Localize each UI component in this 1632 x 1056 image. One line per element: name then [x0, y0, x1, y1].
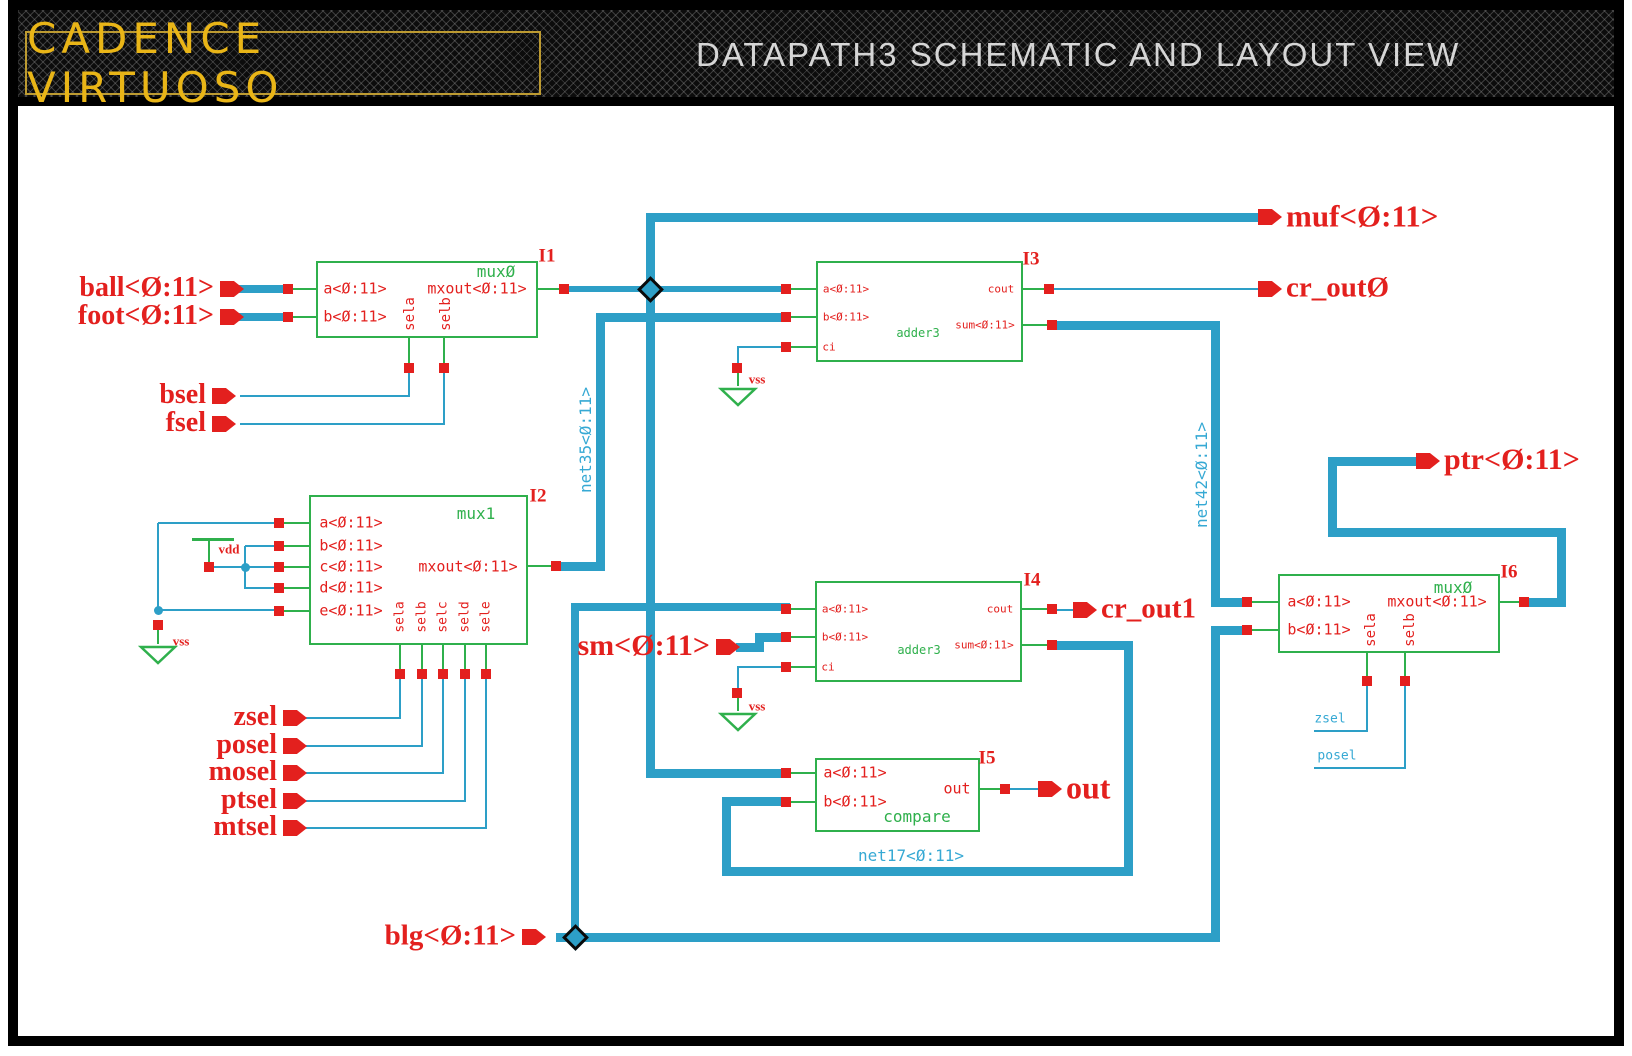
io-pin-arrow-foot11 — [220, 309, 244, 325]
wire-segment — [790, 608, 815, 610]
pin-label: sum<Ø:11> — [955, 320, 1015, 331]
junction-diamond — [637, 276, 664, 303]
pin-square — [1362, 676, 1372, 686]
io-pin-arrow-mosel — [283, 765, 307, 781]
io-pin-label-blg11: blg<Ø:11> — [385, 921, 516, 950]
pin-square — [1000, 784, 1010, 794]
pin-square — [781, 284, 791, 294]
io-pin-arrow-ptr11 — [1416, 453, 1440, 469]
wire-segment — [722, 867, 1133, 876]
pin-square — [274, 518, 284, 528]
pin-square — [781, 797, 791, 807]
pin-label: a<Ø:11> — [822, 604, 868, 615]
pin-label: selb — [439, 297, 453, 331]
pin-label: selb — [416, 601, 429, 632]
instance-label: I3 — [1023, 250, 1040, 269]
io-pin-label-ptsel: ptsel — [221, 786, 277, 814]
block-type-label: adder3 — [896, 327, 939, 339]
pin-label: sela — [403, 297, 417, 331]
pin-label: b<Ø:11> — [823, 312, 869, 323]
pin-square — [274, 541, 284, 551]
wire-segment — [464, 645, 466, 670]
pin-label: mxout<Ø:11> — [427, 282, 526, 297]
pin-square — [460, 669, 470, 679]
pin-square — [283, 312, 293, 322]
junction-dot — [241, 563, 250, 572]
wire-segment — [283, 545, 309, 547]
power-label: vdd — [219, 543, 240, 556]
wire-segment — [399, 678, 401, 719]
wire-segment — [1009, 788, 1040, 790]
pin-label: cout — [987, 604, 1014, 615]
pin-square — [781, 632, 791, 642]
io-pin-label-foot11: foot<Ø:11> — [78, 302, 214, 330]
pin-label: a<Ø:11> — [323, 282, 386, 297]
io-pin-arrow-cr_out1 — [1073, 602, 1097, 618]
pin-label: c<Ø:11> — [319, 560, 382, 575]
pin-label: a<Ø:11> — [823, 766, 886, 781]
pin-label: cout — [988, 284, 1015, 295]
wire-segment — [1053, 288, 1258, 290]
pin-square — [204, 562, 214, 572]
pin-square — [1400, 676, 1410, 686]
instance-label: I6 — [1501, 563, 1518, 582]
pin-square — [551, 561, 561, 571]
io-pin-label-muf11: muf<Ø:11> — [1286, 200, 1438, 231]
io-pin-label-bsel: bsel — [159, 381, 206, 409]
io-pin-arrow-cr_out — [1258, 281, 1282, 297]
instance-label: I1 — [539, 247, 556, 266]
pin-square — [1242, 597, 1252, 607]
wire-segment — [1023, 324, 1049, 326]
power-label: vss — [173, 635, 190, 648]
wire-segment — [1314, 767, 1406, 769]
wire-segment — [283, 522, 309, 524]
wire-segment — [1404, 653, 1406, 678]
pin-label: b<Ø:11> — [319, 539, 382, 554]
pin-square — [439, 363, 449, 373]
pin-square — [153, 620, 163, 630]
block-type-label: compare — [883, 809, 950, 825]
pin-square — [781, 604, 791, 614]
pin-label: b<Ø:11> — [1287, 623, 1350, 638]
pin-square — [732, 688, 742, 698]
io-pin-arrow-zsel — [283, 710, 307, 726]
wire-segment — [283, 566, 309, 568]
vss-ground-icon — [718, 711, 758, 733]
io-pin-label-ptr11: ptr<Ø:11> — [1444, 445, 1580, 475]
io-pin-arrow-sm11 — [716, 639, 740, 655]
wire-segment — [1366, 653, 1368, 678]
wire-segment — [790, 666, 815, 668]
net-label: zsel — [1314, 713, 1345, 726]
pin-square — [274, 606, 284, 616]
wire-segment — [1052, 641, 1133, 650]
wire-segment — [1022, 608, 1049, 610]
wire-segment — [293, 288, 316, 290]
wire-segment — [722, 797, 731, 876]
block-type-label: adder3 — [897, 644, 940, 656]
wire-segment — [283, 587, 309, 589]
block-type-label: muxØ — [1434, 580, 1473, 596]
page: CADENCE VIRTUOSO DATAPATH3 SCHEMATIC AND… — [0, 0, 1632, 1056]
pin-label: selb — [1403, 613, 1417, 647]
wire-segment — [646, 213, 1262, 222]
pin-label: a<Ø:11> — [1287, 595, 1350, 610]
pin-square — [781, 768, 791, 778]
vss-ground-icon — [718, 386, 758, 408]
io-pin-arrow-fsel — [212, 416, 236, 432]
wire-segment — [737, 372, 739, 386]
wire-segment — [240, 395, 410, 397]
wire-segment — [571, 603, 790, 611]
io-pin-label-cr_out: cr_outØ — [1286, 273, 1389, 302]
power-label: vss — [749, 700, 766, 713]
net-label: net42<Ø:11> — [1194, 422, 1210, 528]
wire-segment — [790, 346, 816, 348]
io-pin-label-posel: posel — [216, 731, 277, 759]
pin-square — [417, 669, 427, 679]
wire-segment — [1251, 601, 1278, 603]
wire-segment — [485, 645, 487, 670]
wire-segment — [646, 769, 790, 778]
wire-segment — [399, 645, 401, 670]
junction-dot — [154, 606, 163, 615]
wire-segment — [790, 772, 815, 774]
io-pin-arrow-blg11 — [522, 929, 546, 945]
wire-segment — [1056, 609, 1075, 611]
wire-segment — [421, 645, 423, 670]
wire-segment — [1211, 321, 1220, 607]
wire-segment — [1404, 685, 1406, 769]
pin-label: b<Ø:11> — [822, 632, 868, 643]
pin-square — [1047, 640, 1057, 650]
block-type-label: mux1 — [457, 506, 496, 522]
wire-segment — [157, 629, 159, 644]
pin-square — [781, 662, 791, 672]
pin-square — [404, 363, 414, 373]
pin-square — [781, 312, 791, 322]
pin-square — [781, 342, 791, 352]
wire-segment — [790, 316, 816, 318]
wire-segment — [1023, 288, 1046, 290]
pin-square — [559, 284, 569, 294]
instance-label: I2 — [530, 487, 547, 506]
pin-label: a<Ø:11> — [823, 284, 869, 295]
wire-segment — [1022, 644, 1049, 646]
pin-square — [732, 363, 742, 373]
pin-label: sum<Ø:11> — [954, 640, 1014, 651]
pin-square — [274, 562, 284, 572]
pin-label: ci — [822, 342, 835, 353]
wire-segment — [564, 286, 790, 292]
wire-segment — [306, 800, 466, 802]
io-pin-label-cr_out1: cr_out1 — [1101, 594, 1196, 623]
wire-segment — [240, 423, 445, 425]
wire-segment — [790, 801, 815, 803]
wire-segment — [1328, 528, 1566, 537]
io-pin-arrow-posel — [283, 738, 307, 754]
wire-segment — [158, 609, 279, 611]
pin-label: seld — [459, 601, 472, 632]
io-pin-label-zsel: zsel — [233, 703, 277, 731]
wire-segment — [208, 541, 210, 563]
io-pin-label-ball11: ball<Ø:11> — [79, 274, 214, 302]
wire-segment — [158, 522, 279, 524]
wire-segment — [443, 338, 445, 364]
wire-segment — [1500, 601, 1521, 603]
pin-label: sele — [480, 601, 493, 632]
wire-segment — [596, 313, 790, 322]
wire-segment — [722, 797, 790, 806]
pin-square — [1047, 320, 1057, 330]
pin-label: b<Ø:11> — [323, 310, 386, 325]
pin-square — [395, 669, 405, 679]
junction-diamond — [562, 924, 589, 951]
wire-segment — [596, 313, 605, 571]
io-pin-label-mtsel: mtsel — [213, 813, 277, 841]
instance-label: I5 — [979, 749, 996, 768]
pin-square — [1519, 597, 1529, 607]
io-pin-label-sm11: sm<Ø:11> — [577, 631, 710, 661]
wire-segment — [464, 678, 466, 802]
power-label: vss — [749, 373, 766, 386]
wire-segment — [556, 933, 1220, 942]
pin-label: sela — [394, 601, 407, 632]
wire-segment — [1124, 641, 1133, 876]
wire-segment — [293, 316, 316, 318]
wire-segment — [306, 827, 487, 829]
wire-segment — [1366, 685, 1368, 732]
io-pin-arrow-ball11 — [220, 281, 244, 297]
wire-segment — [1557, 528, 1566, 607]
wire-segment — [421, 678, 423, 747]
net-label: net17<Ø:11> — [858, 848, 964, 864]
instance-label: I4 — [1024, 571, 1041, 590]
schematic-canvas: a<Ø:11>b<Ø:11>mxout<Ø:11>selaselbmuxØI1a… — [0, 0, 1632, 1056]
io-pin-label-out: out — [1066, 772, 1110, 804]
wire-segment — [443, 370, 445, 425]
pin-square — [1044, 284, 1054, 294]
wire-segment — [1052, 321, 1220, 330]
io-pin-arrow-bsel — [212, 388, 236, 404]
pin-label: e<Ø:11> — [319, 604, 382, 619]
net-label: net35<Ø:11> — [578, 387, 594, 493]
io-pin-label-fsel: fsel — [166, 409, 206, 437]
wire-segment — [1251, 629, 1278, 631]
net-label: posel — [1317, 750, 1356, 763]
pin-label: selc — [437, 601, 450, 632]
wire-segment — [306, 717, 401, 719]
wire-segment — [980, 788, 1002, 790]
io-pin-arrow-muf11 — [1258, 209, 1282, 225]
pin-square — [481, 669, 491, 679]
wire-segment — [1328, 457, 1337, 537]
wire-segment — [442, 678, 444, 774]
wire-segment — [408, 338, 410, 364]
wire-segment — [1211, 626, 1220, 941]
pin-label: out — [943, 782, 970, 797]
wire-segment — [485, 678, 487, 829]
pin-square — [438, 669, 448, 679]
pin-label: b<Ø:11> — [823, 795, 886, 810]
pin-square — [274, 583, 284, 593]
pin-label: d<Ø:11> — [319, 581, 382, 596]
wire-segment — [283, 610, 309, 612]
io-pin-label-mosel: mosel — [209, 758, 277, 786]
wire-segment — [1314, 730, 1368, 732]
pin-label: a<Ø:11> — [319, 516, 382, 531]
wire-segment — [306, 745, 423, 747]
pin-label: ci — [821, 662, 834, 673]
pin-label: sela — [1364, 613, 1378, 647]
pin-label: mxout<Ø:11> — [418, 560, 517, 575]
wire-segment — [1328, 457, 1418, 466]
wire-segment — [306, 772, 444, 774]
wire-segment — [157, 523, 159, 610]
block-type-label: muxØ — [477, 264, 516, 280]
wire-segment — [408, 370, 410, 397]
pin-square — [1047, 604, 1057, 614]
io-pin-arrow-mtsel — [283, 820, 307, 836]
io-pin-arrow-out — [1038, 781, 1062, 797]
wire-segment — [737, 697, 739, 711]
io-pin-arrow-ptsel — [283, 793, 307, 809]
pin-square — [283, 284, 293, 294]
wire-segment — [442, 645, 444, 670]
wire-segment — [790, 288, 816, 290]
pin-square — [1242, 625, 1252, 635]
wire-segment — [790, 636, 815, 638]
